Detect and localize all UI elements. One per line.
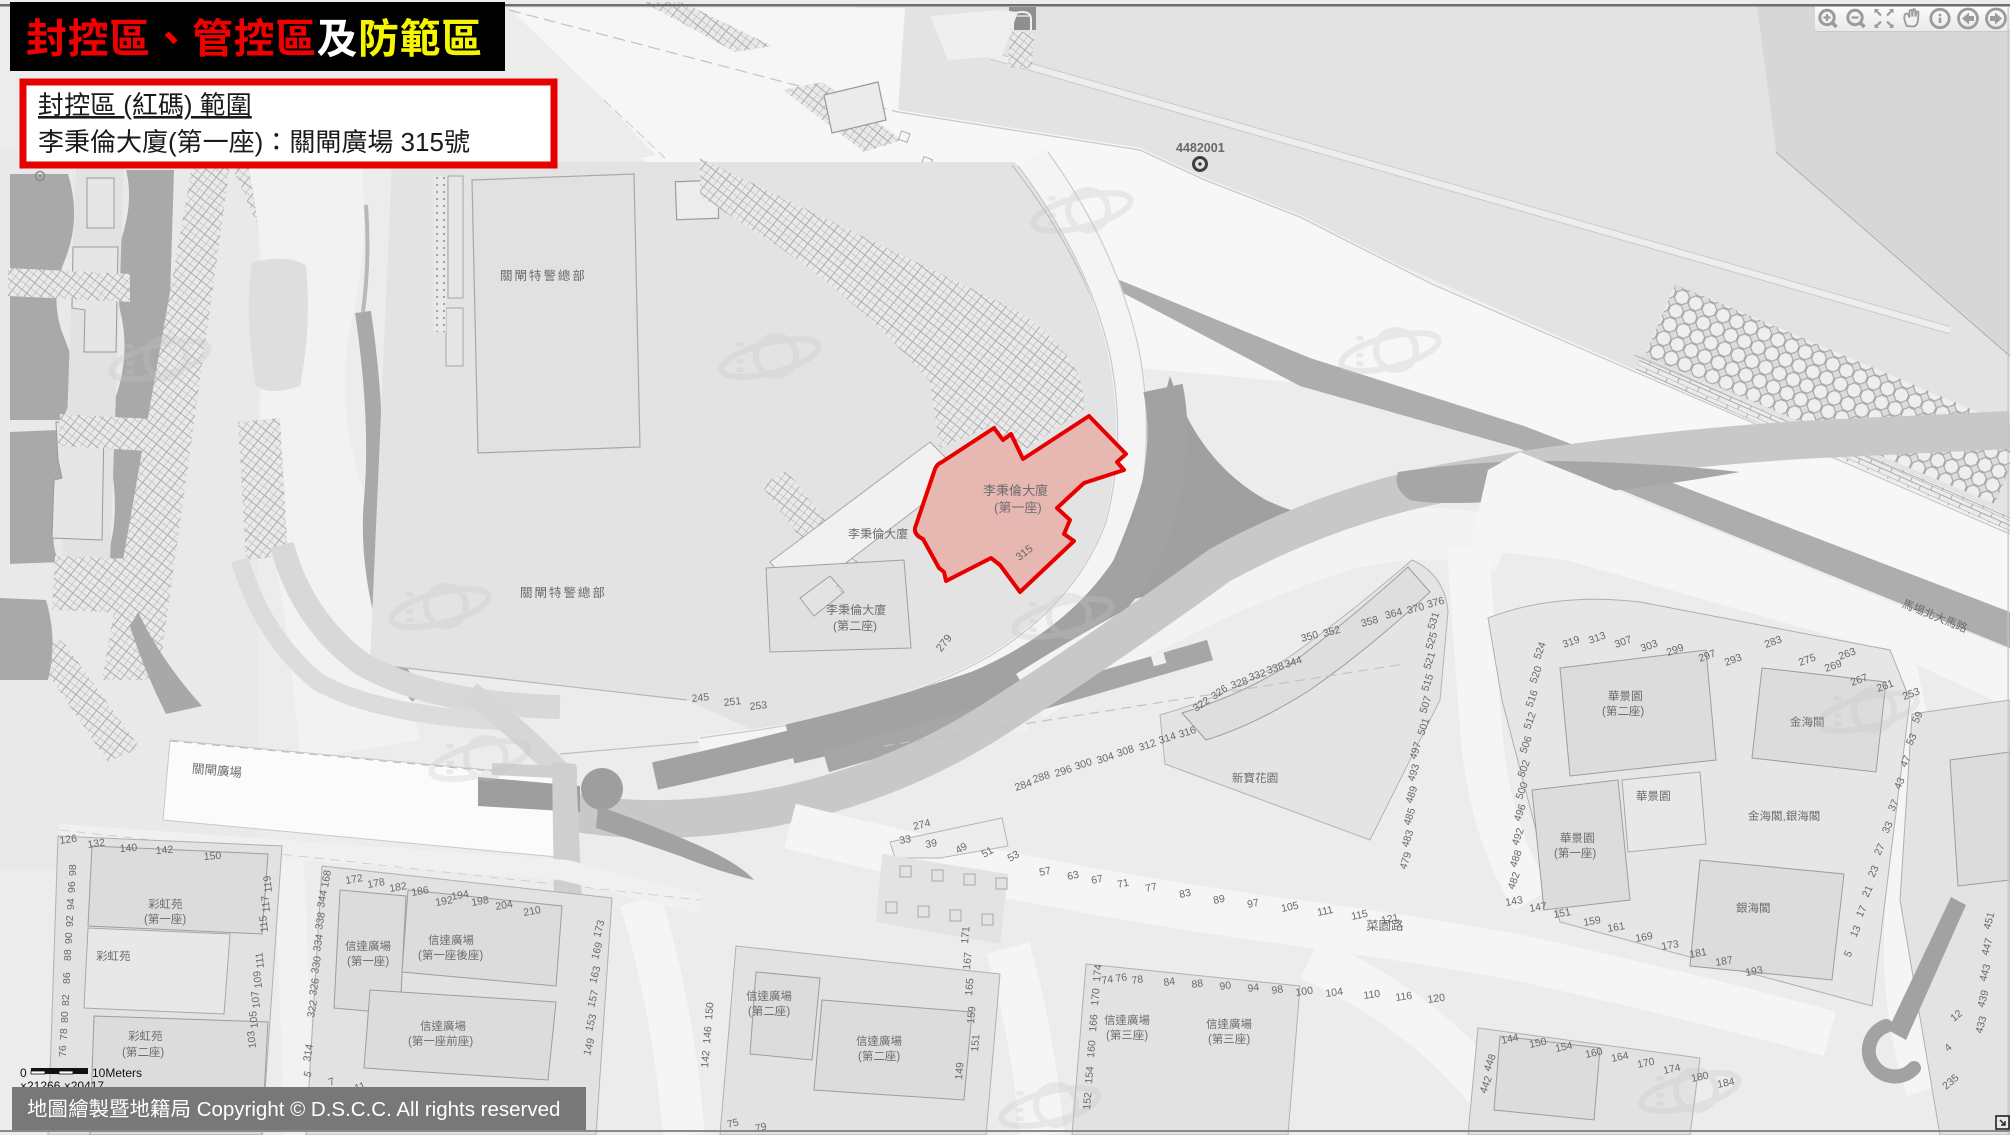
svg-text:104: 104 xyxy=(1325,986,1344,1000)
svg-text:(第三座): (第三座) xyxy=(1208,1031,1250,1047)
svg-text:10Meters: 10Meters xyxy=(92,1066,142,1080)
svg-text:信達廣場: 信達廣場 xyxy=(746,988,792,1004)
svg-text:華景園: 華景園 xyxy=(1636,788,1671,804)
svg-text:107: 107 xyxy=(249,990,263,1009)
svg-text:126: 126 xyxy=(59,833,78,847)
svg-text:160: 160 xyxy=(1085,1040,1098,1059)
svg-text:142: 142 xyxy=(155,844,173,857)
svg-text:165: 165 xyxy=(963,978,976,997)
svg-text:82: 82 xyxy=(60,994,72,1006)
svg-text:92: 92 xyxy=(64,915,76,927)
svg-text:90: 90 xyxy=(63,932,75,944)
svg-text:33: 33 xyxy=(898,833,912,847)
svg-text:110: 110 xyxy=(1363,988,1381,1002)
svg-text:94: 94 xyxy=(65,898,77,910)
svg-text:金海閣,銀海閣: 金海閣,銀海閣 xyxy=(1748,808,1820,824)
svg-text:146: 146 xyxy=(701,1026,714,1045)
svg-text:銀海閣: 銀海閣 xyxy=(1736,900,1771,916)
svg-text:96: 96 xyxy=(66,881,78,893)
svg-text:117: 117 xyxy=(259,895,273,913)
svg-text:132: 132 xyxy=(87,837,106,851)
svg-text:信達廣場: 信達廣場 xyxy=(856,1033,902,1049)
svg-text:119: 119 xyxy=(261,875,275,893)
svg-text:80: 80 xyxy=(59,1011,71,1023)
svg-text:170: 170 xyxy=(1089,988,1102,1007)
svg-text:116: 116 xyxy=(1395,990,1413,1004)
svg-text:信達廣場: 信達廣場 xyxy=(428,932,474,948)
svg-text:152: 152 xyxy=(1081,1092,1094,1111)
svg-text:167: 167 xyxy=(961,952,974,971)
svg-text:信達廣場: 信達廣場 xyxy=(1206,1016,1252,1032)
svg-text:李秉倫大廈(第一座)：關閘廣場 315號: 李秉倫大廈(第一座)：關閘廣場 315號 xyxy=(38,122,470,159)
svg-text:142: 142 xyxy=(699,1050,712,1069)
svg-text:(第一座後座): (第一座後座) xyxy=(418,947,483,963)
svg-text:253: 253 xyxy=(749,699,768,713)
svg-text:華景園: 華景園 xyxy=(1560,830,1595,846)
svg-text:150: 150 xyxy=(203,850,221,863)
svg-text:李秉倫大廈: 李秉倫大廈 xyxy=(848,525,908,542)
svg-text:(第一座前座): (第一座前座) xyxy=(408,1033,473,1049)
svg-text:94: 94 xyxy=(1247,981,1260,995)
svg-text:115: 115 xyxy=(257,915,271,933)
svg-text:78: 78 xyxy=(58,1028,70,1040)
svg-text:(第一座): (第一座) xyxy=(144,911,186,927)
svg-text:74: 74 xyxy=(1101,973,1114,987)
svg-text:李秉倫大廈: 李秉倫大廈 xyxy=(826,601,886,618)
svg-text:關閘特警總部: 關閘特警總部 xyxy=(520,582,607,601)
svg-text:信達廣場: 信達廣場 xyxy=(345,938,391,954)
svg-text:(第二座): (第二座) xyxy=(858,1048,900,1064)
svg-text:78: 78 xyxy=(1131,973,1144,987)
svg-text:關閘特警總部: 關閘特警總部 xyxy=(500,265,587,284)
svg-text:251: 251 xyxy=(723,695,742,709)
svg-text:彩虹苑: 彩虹苑 xyxy=(96,948,131,964)
svg-text:159: 159 xyxy=(965,1006,978,1025)
svg-text:(第三座): (第三座) xyxy=(1106,1027,1148,1043)
svg-text:98: 98 xyxy=(1271,983,1284,997)
svg-text:154: 154 xyxy=(1083,1066,1096,1085)
svg-text:(第二座): (第二座) xyxy=(1602,703,1644,719)
svg-text:120: 120 xyxy=(1427,992,1446,1006)
svg-text:彩虹苑: 彩虹苑 xyxy=(128,1028,163,1044)
svg-text:86: 86 xyxy=(61,972,73,984)
svg-text:地圖繪製暨地籍局 Copyright © D.S.C.C.: 地圖繪製暨地籍局 Copyright © D.S.C.C. All rights… xyxy=(27,1092,560,1122)
svg-text:84: 84 xyxy=(1163,975,1176,989)
svg-text:華景園: 華景園 xyxy=(1608,688,1643,704)
svg-text:103: 103 xyxy=(245,1030,259,1049)
svg-text:171: 171 xyxy=(959,926,972,945)
svg-text:98: 98 xyxy=(67,864,79,876)
svg-text:彩虹苑: 彩虹苑 xyxy=(148,896,183,912)
svg-text:149: 149 xyxy=(953,1062,966,1081)
svg-text:封控區 (紅碼) 範圍: 封控區 (紅碼) 範圍 xyxy=(38,85,252,122)
svg-text:140: 140 xyxy=(119,842,137,855)
svg-text:76: 76 xyxy=(1115,971,1128,985)
svg-text:4482001: 4482001 xyxy=(1176,141,1225,155)
svg-text:150: 150 xyxy=(703,1002,716,1021)
svg-text:(第二座): (第二座) xyxy=(748,1003,790,1019)
svg-text:(第一座): (第一座) xyxy=(1554,845,1596,861)
svg-text:(第二座): (第二座) xyxy=(122,1044,164,1060)
svg-text:(第一座): (第一座) xyxy=(994,497,1042,516)
svg-text:100: 100 xyxy=(1295,985,1314,999)
svg-text:信達廣場: 信達廣場 xyxy=(420,1018,466,1034)
svg-text:245: 245 xyxy=(691,691,710,705)
svg-text:(第一座): (第一座) xyxy=(347,953,389,969)
svg-text:信達廣場: 信達廣場 xyxy=(1104,1012,1150,1028)
svg-text:90: 90 xyxy=(1219,979,1232,993)
svg-text:109: 109 xyxy=(251,970,265,989)
svg-text:88: 88 xyxy=(62,949,74,961)
svg-text:(第二座): (第二座) xyxy=(833,617,877,634)
svg-text:新寶花園: 新寶花園 xyxy=(1232,770,1278,786)
svg-text:封控區、管控區及防範區: 封控區、管控區及防範區 xyxy=(26,5,483,65)
svg-text:105: 105 xyxy=(247,1010,261,1029)
svg-text:0: 0 xyxy=(20,1066,27,1080)
svg-text:39: 39 xyxy=(924,837,938,851)
svg-text:76: 76 xyxy=(57,1045,69,1057)
svg-text:88: 88 xyxy=(1191,977,1204,991)
svg-text:111: 111 xyxy=(253,952,267,969)
svg-text:151: 151 xyxy=(969,1034,982,1053)
svg-text:166: 166 xyxy=(1087,1014,1100,1033)
